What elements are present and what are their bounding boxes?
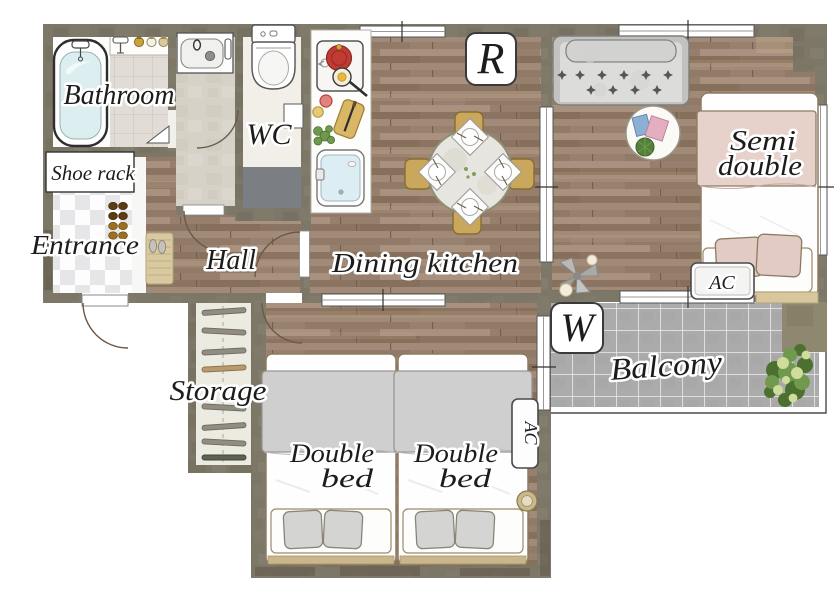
svg-text:WC: WC <box>247 118 293 151</box>
svg-text:AC: AC <box>521 420 541 445</box>
svg-text:Storage: Storage <box>170 375 267 407</box>
svg-text:W: W <box>560 305 597 350</box>
svg-text:AC: AC <box>707 272 735 294</box>
svg-text:Hall: Hall <box>205 245 256 276</box>
svg-text:bed: bed <box>439 464 492 493</box>
svg-text:Dining kitchen: Dining kitchen <box>331 248 518 278</box>
svg-text:Bathroom: Bathroom <box>64 80 175 111</box>
svg-text:Entrance: Entrance <box>30 230 139 260</box>
svg-text:bed: bed <box>321 464 374 493</box>
svg-text:R: R <box>477 34 505 83</box>
svg-text:Shoe rack: Shoe rack <box>51 161 135 185</box>
svg-text:double: double <box>718 151 802 182</box>
